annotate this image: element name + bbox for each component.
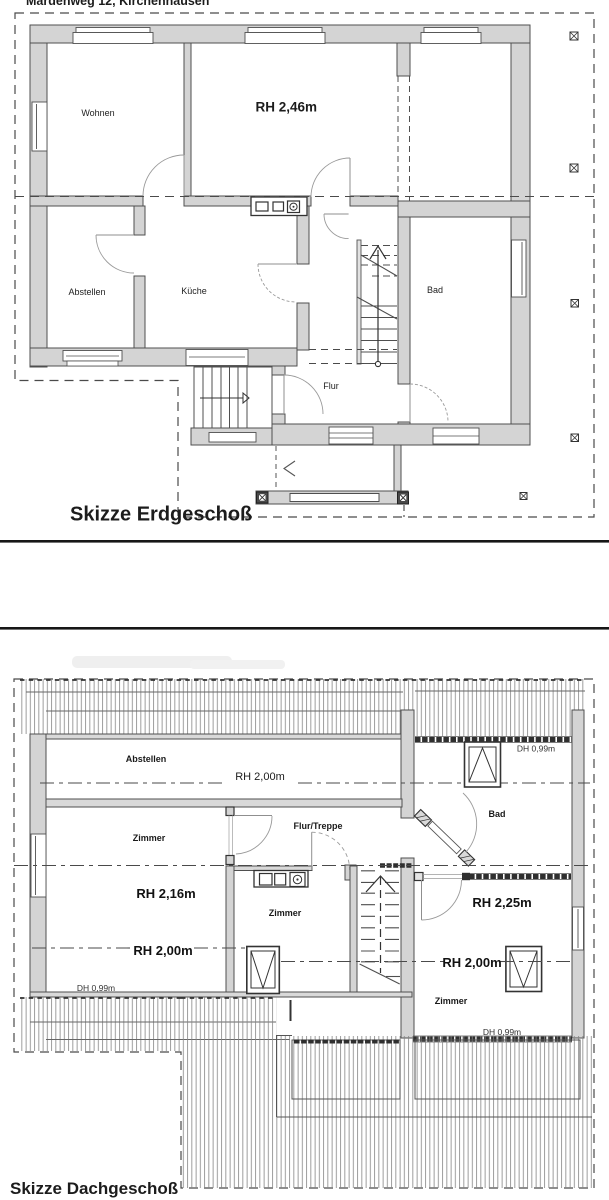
svg-text:Zimmer: Zimmer	[133, 833, 166, 843]
svg-text:RH 2,00m: RH 2,00m	[442, 955, 501, 970]
svg-text:Zimmer: Zimmer	[435, 996, 468, 1006]
svg-text:Skizze Erdgeschoß: Skizze Erdgeschoß	[70, 504, 252, 526]
svg-text:Bad: Bad	[427, 285, 443, 295]
svg-text:DH 0,99m: DH 0,99m	[483, 1027, 521, 1037]
svg-text:Küche: Küche	[181, 286, 207, 296]
svg-text:Zimmer: Zimmer	[269, 908, 302, 918]
svg-text:RH 2,00m: RH 2,00m	[235, 771, 285, 783]
svg-text:Flur/Treppe: Flur/Treppe	[293, 821, 342, 831]
svg-text:Mardenweg 12, Kirchenhausen: Mardenweg 12, Kirchenhausen	[26, 0, 209, 8]
svg-text:Wohnen: Wohnen	[81, 108, 114, 118]
svg-text:RH 2,16m: RH 2,16m	[136, 886, 195, 901]
svg-text:RH 2,00m: RH 2,00m	[133, 943, 192, 958]
svg-text:Abstellen: Abstellen	[126, 754, 167, 764]
svg-text:DH 0,99m: DH 0,99m	[517, 744, 555, 754]
svg-text:Skizze Dachgeschoß: Skizze Dachgeschoß	[10, 1179, 178, 1198]
svg-text:Bad: Bad	[488, 809, 505, 819]
svg-text:Abstellen: Abstellen	[68, 287, 105, 297]
svg-text:DH 0,99m: DH 0,99m	[77, 983, 115, 993]
svg-text:RH 2,46m: RH 2,46m	[256, 100, 318, 115]
svg-text:Flur: Flur	[323, 381, 339, 391]
svg-text:RH 2,25m: RH 2,25m	[472, 895, 531, 910]
